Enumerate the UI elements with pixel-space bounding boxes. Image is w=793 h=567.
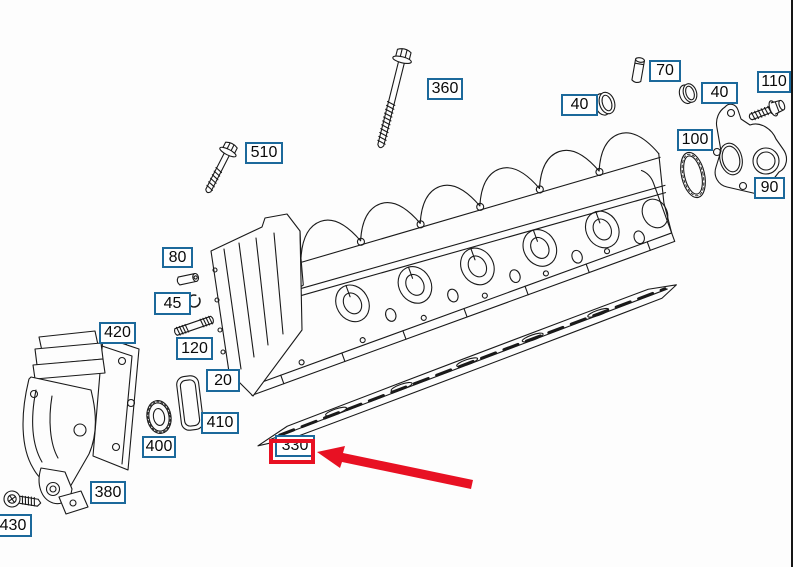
part-label-70[interactable]: 70 xyxy=(649,60,681,82)
part-label-40-left[interactable]: 40 xyxy=(561,94,598,116)
part-label-100[interactable]: 100 xyxy=(677,129,713,151)
part-label-80[interactable]: 80 xyxy=(162,247,193,268)
part-label-400[interactable]: 400 xyxy=(142,436,176,458)
part-label-420[interactable]: 420 xyxy=(99,322,136,344)
part-label-110[interactable]: 110 xyxy=(757,71,791,93)
parts-diagram-canvas: 3605107040401101009080451204202041040038… xyxy=(0,0,793,567)
part-label-90[interactable]: 90 xyxy=(754,177,785,199)
part-label-360[interactable]: 360 xyxy=(427,78,463,100)
part-label-410[interactable]: 410 xyxy=(201,412,239,434)
part-label-380[interactable]: 380 xyxy=(90,481,126,504)
highlight-box xyxy=(269,439,315,464)
part-labels-layer: 3605107040401101009080451204202041040038… xyxy=(0,0,791,567)
part-label-20[interactable]: 20 xyxy=(206,369,240,392)
part-label-40-right[interactable]: 40 xyxy=(701,82,738,104)
part-label-430[interactable]: 430 xyxy=(0,514,32,537)
part-label-120[interactable]: 120 xyxy=(176,337,213,360)
part-label-45[interactable]: 45 xyxy=(154,292,191,315)
part-label-510[interactable]: 510 xyxy=(245,142,283,164)
